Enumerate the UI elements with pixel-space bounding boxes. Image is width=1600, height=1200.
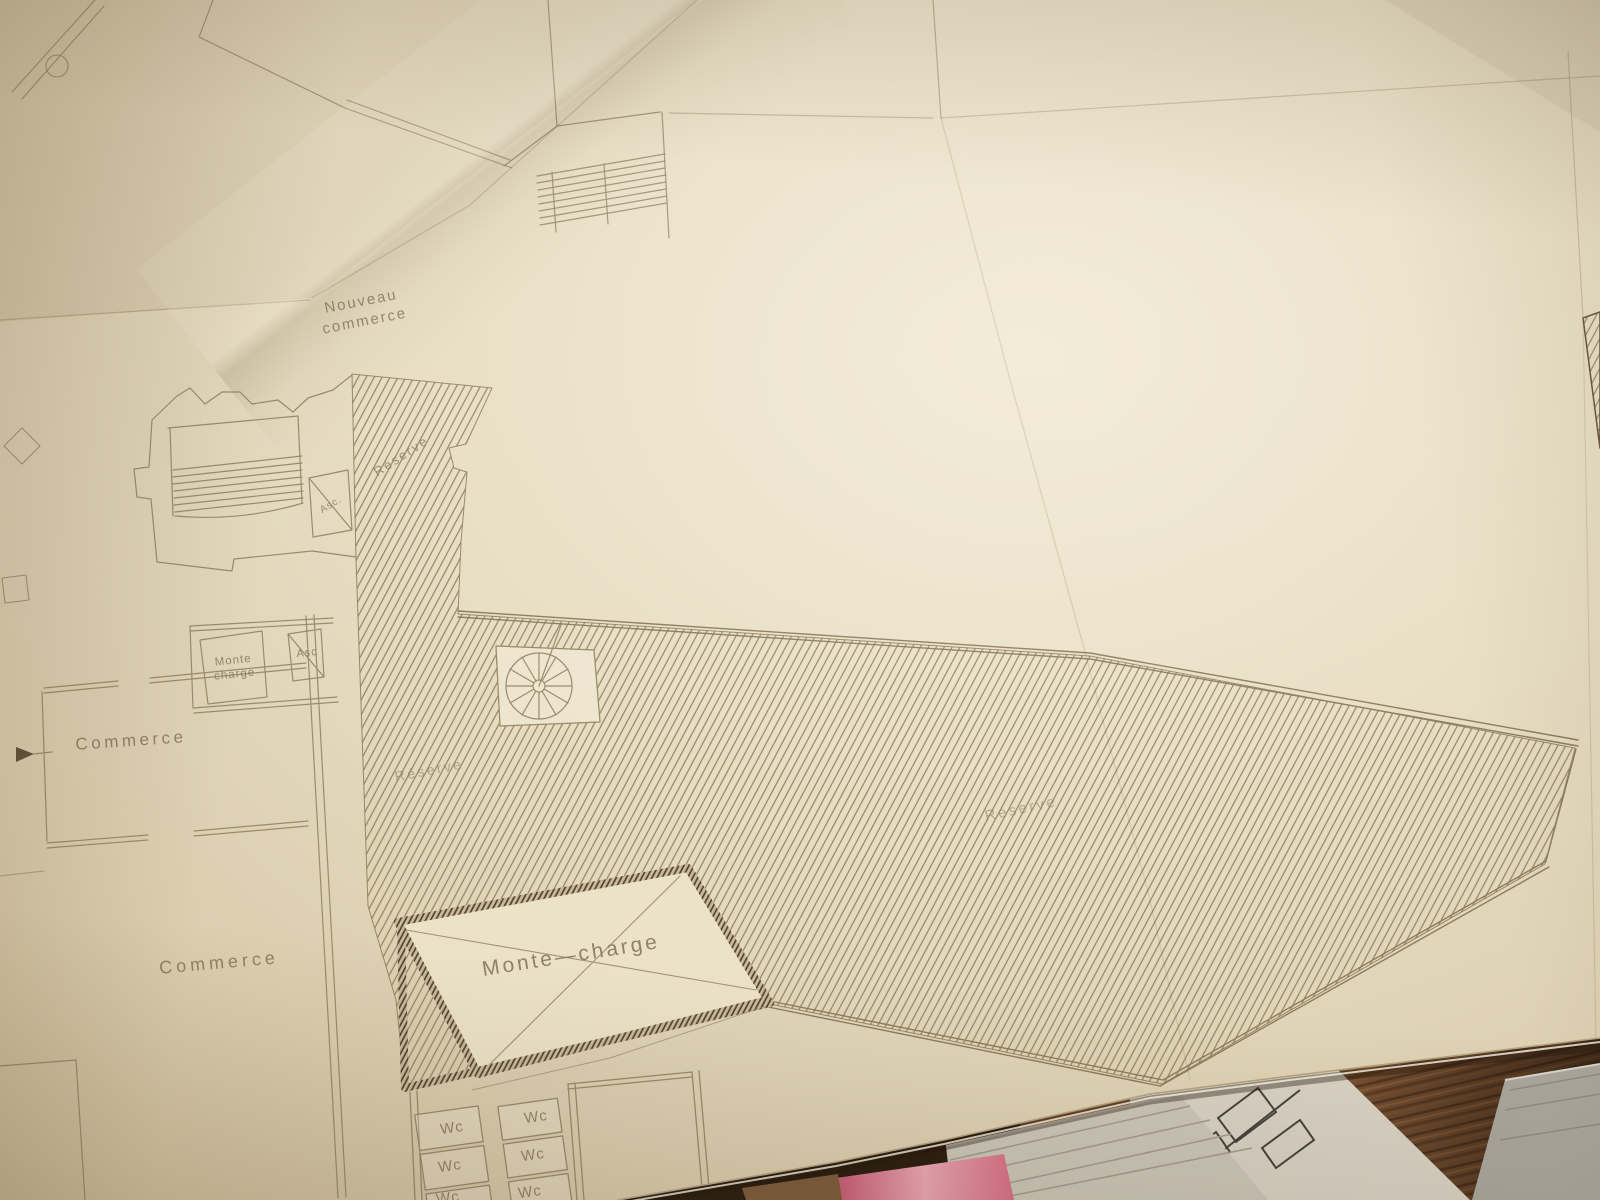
plan-photo-svg xyxy=(0,0,1600,1200)
photo-of-floor-plan: Nouveau commerce Réserve Asc. Monte char… xyxy=(0,0,1600,1200)
